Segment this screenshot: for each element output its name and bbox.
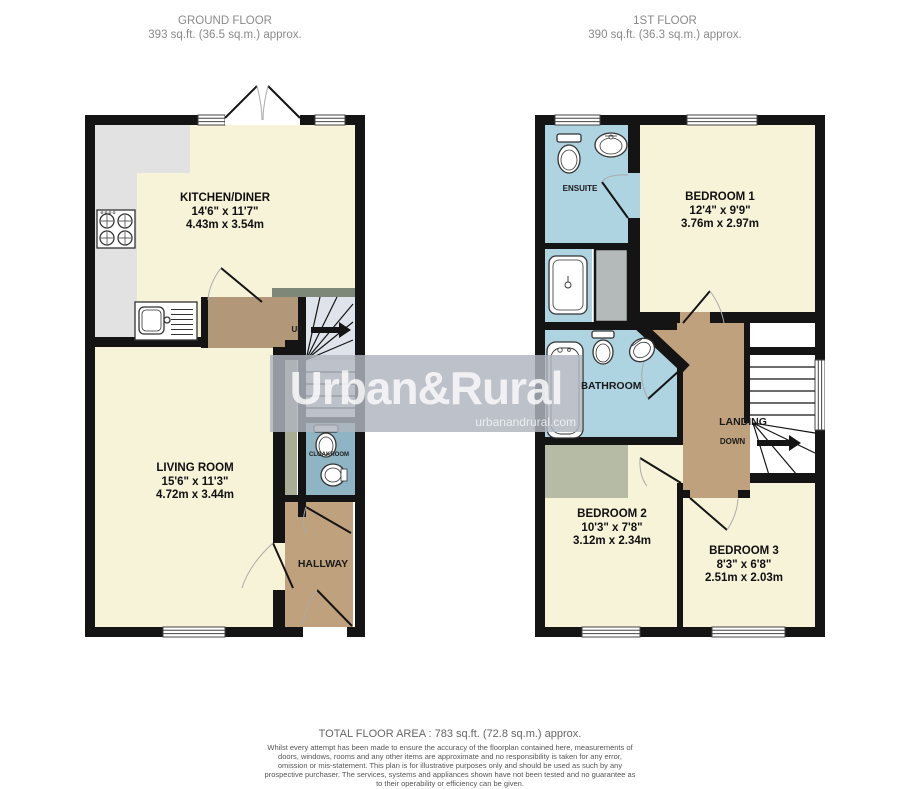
french-doors (225, 86, 300, 120)
bedroom2-door-opening (677, 445, 683, 483)
ensuite-label: ENSUITE (548, 184, 612, 193)
ground-floor-area: 393 sq.ft. (36.5 sq.m.) approx. (85, 28, 365, 42)
stair-bulkhead-strip (272, 288, 355, 297)
kitchen-label: KITCHEN/DINER 14'6" x 11'7" 4.43m x 3.54… (145, 192, 305, 233)
cupboard-area (595, 249, 628, 322)
cloakroom-label: CLOAKROOM (300, 452, 358, 458)
watermark-brand: Urban&Rural (270, 361, 582, 415)
stair-void (750, 323, 815, 347)
first-floor-area: 390 sq.ft. (36.3 sq.m.) approx. (525, 28, 805, 42)
bedroom3-area-ext (750, 483, 815, 501)
total-floor-area: TOTAL FLOOR AREA : 783 sq.ft. (72.8 sq.m… (0, 728, 900, 740)
bedroom1-label: BEDROOM 1 12'4" x 9'9" 3.76m x 2.97m (640, 191, 800, 232)
footer: TOTAL FLOOR AREA : 783 sq.ft. (72.8 sq.m… (0, 728, 900, 789)
first-floor-header: 1ST FLOOR 390 sq.ft. (36.3 sq.m.) approx… (525, 14, 805, 42)
hob-icon (97, 210, 135, 248)
bedroom2-wardrobe (545, 445, 628, 498)
bedroom2-label: BEDROOM 2 10'3" x 7'8" 3.12m x 2.34m (532, 508, 692, 549)
ensuite-door-opening (628, 173, 640, 218)
watermark-band: Urban&Rural urbanandrural.com (270, 355, 582, 432)
kitchen-sink-icon (135, 302, 197, 340)
bedroom3-door-opening (690, 490, 738, 498)
ensuite-toilet-icon (557, 134, 581, 173)
up-label: UP (282, 325, 312, 334)
ensuite-sink-icon (595, 133, 627, 157)
kitchen-counter-top (95, 125, 190, 173)
bathroom-toilet-icon (592, 331, 614, 364)
down-label: DOWN (710, 437, 755, 446)
landing-area (680, 323, 750, 490)
hallway-label: HALLWAY (286, 558, 360, 570)
ground-floor-title: GROUND FLOOR (85, 14, 365, 28)
living-label: LIVING ROOM 15'6" x 11'3" 4.72m x 3.44m (115, 462, 275, 503)
floorplan-page: GROUND FLOOR 393 sq.ft. (36.5 sq.m.) app… (0, 0, 900, 789)
up-vestibule-area (208, 297, 298, 348)
shower-icon (549, 256, 587, 314)
watermark-site: urbanandrural.com (475, 415, 576, 429)
first-floor-title: 1ST FLOOR (525, 14, 805, 28)
ground-floor-header: GROUND FLOOR 393 sq.ft. (36.5 sq.m.) app… (85, 14, 365, 42)
landing-label: LANDING (700, 416, 786, 428)
disclaimer-text: Whilst every attempt has been made to en… (264, 743, 636, 788)
bedroom3-label: BEDROOM 3 8'3" x 6'8" 2.51m x 2.03m (664, 545, 824, 586)
